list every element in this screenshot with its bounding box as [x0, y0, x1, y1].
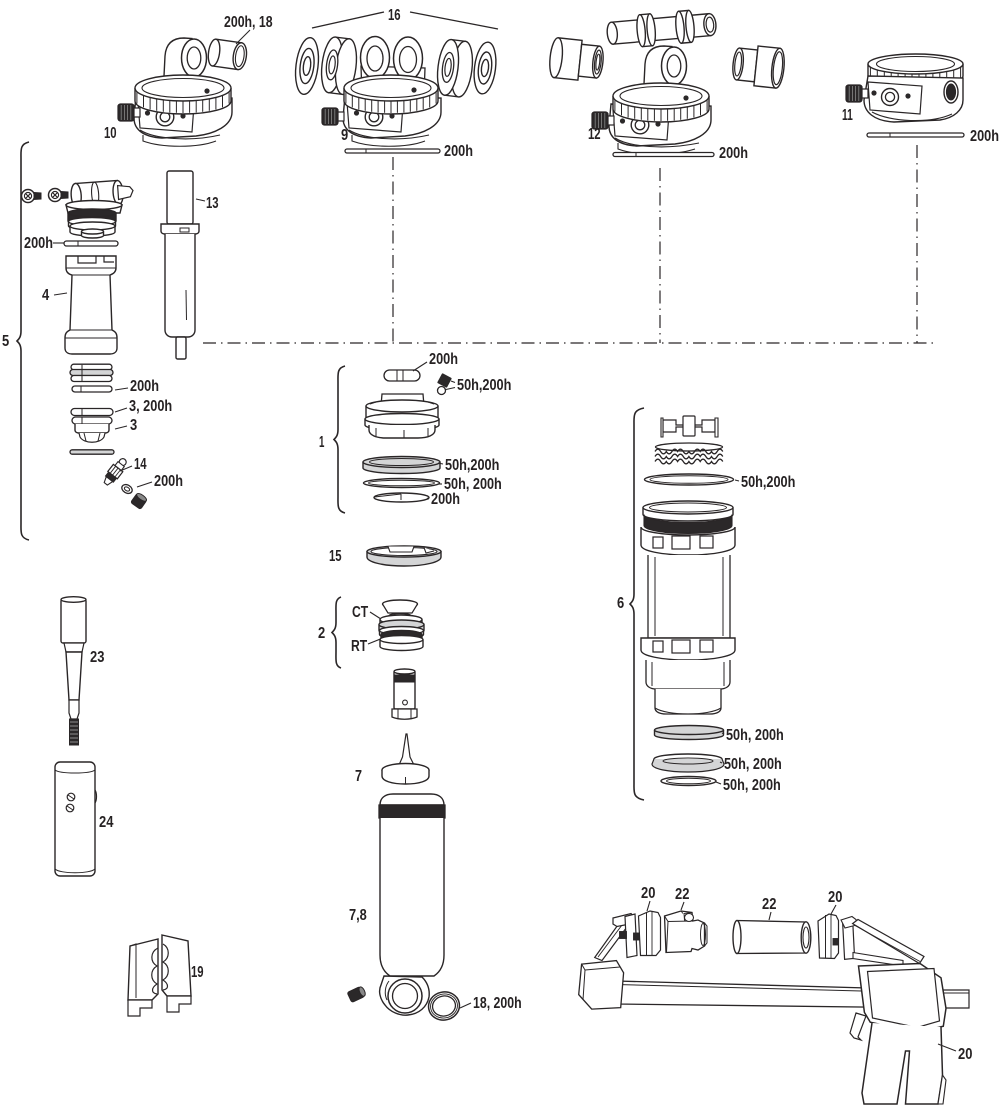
svg-text:1: 1	[319, 434, 325, 451]
svg-text:13: 13	[206, 195, 219, 212]
svg-text:200h: 200h	[970, 128, 999, 145]
svg-text:RT: RT	[351, 638, 368, 655]
svg-text:24: 24	[99, 814, 114, 831]
svg-text:22: 22	[762, 896, 776, 913]
svg-text:23: 23	[90, 649, 105, 666]
svg-text:50h, 200h: 50h, 200h	[723, 777, 781, 794]
svg-text:4: 4	[42, 287, 50, 304]
svg-text:200h: 200h	[719, 145, 748, 162]
svg-text:200h: 200h	[444, 143, 473, 160]
svg-text:200h: 200h	[130, 378, 159, 395]
svg-text:11: 11	[842, 107, 853, 124]
svg-text:7,8: 7,8	[349, 907, 367, 924]
svg-text:200h: 200h	[429, 351, 458, 368]
svg-text:19: 19	[191, 964, 204, 981]
svg-text:16: 16	[388, 7, 401, 24]
svg-text:200h: 200h	[431, 491, 460, 508]
svg-text:9: 9	[341, 127, 349, 144]
svg-text:7: 7	[355, 768, 362, 785]
svg-text:200h: 200h	[24, 235, 53, 252]
svg-text:12: 12	[588, 126, 601, 143]
svg-text:50h, 200h: 50h, 200h	[726, 727, 784, 744]
svg-text:CT: CT	[352, 604, 369, 621]
svg-text:14: 14	[134, 456, 147, 473]
svg-text:5: 5	[2, 333, 10, 350]
svg-text:200h, 18: 200h, 18	[224, 14, 273, 31]
svg-text:10: 10	[104, 125, 117, 142]
svg-text:50h,200h: 50h,200h	[741, 474, 795, 491]
svg-text:50h,200h: 50h,200h	[457, 377, 511, 394]
svg-text:20: 20	[641, 885, 655, 902]
svg-text:6: 6	[617, 595, 625, 612]
svg-text:2: 2	[318, 625, 325, 642]
svg-text:50h,200h: 50h,200h	[445, 457, 499, 474]
svg-text:200h: 200h	[154, 473, 183, 490]
svg-text:20: 20	[828, 889, 842, 906]
svg-text:15: 15	[329, 548, 342, 565]
svg-text:3, 200h: 3, 200h	[129, 398, 172, 415]
svg-text:18, 200h: 18, 200h	[473, 995, 522, 1012]
svg-text:3: 3	[130, 417, 138, 434]
svg-text:50h, 200h: 50h, 200h	[724, 756, 782, 773]
svg-text:20: 20	[958, 1046, 972, 1063]
svg-text:22: 22	[675, 886, 689, 903]
